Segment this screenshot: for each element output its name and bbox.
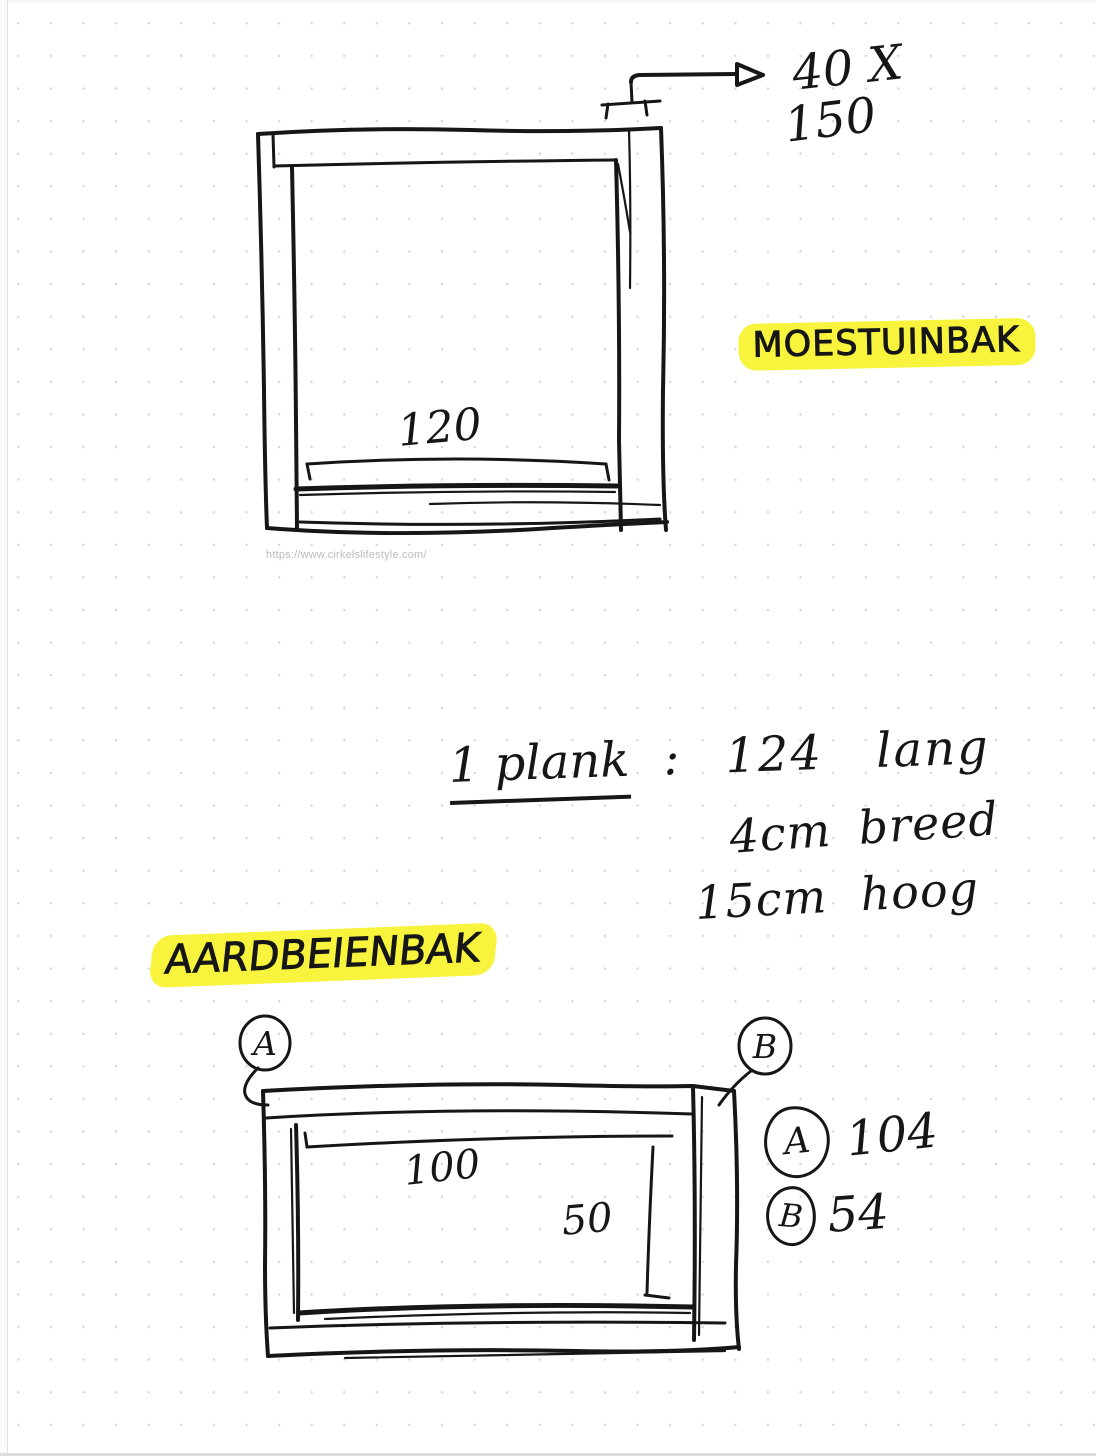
moestuinbak-width-label: 120 xyxy=(396,403,483,454)
moestuinbak-sketch xyxy=(240,60,780,550)
plank-note-width: 4cm breed xyxy=(728,795,1000,860)
callout-b: B xyxy=(719,1018,791,1105)
dimension-bracket-120 xyxy=(307,459,609,480)
moestuinbak-title-highlight: MOESTUINBAK xyxy=(738,318,1036,371)
strawberry-box-outline xyxy=(263,1084,739,1358)
plank-note-length: 124 lang xyxy=(724,719,990,784)
aardbeienbak-sketch: A B xyxy=(225,1005,805,1405)
callout-b-letter: B xyxy=(752,1027,777,1066)
planter-box-outline xyxy=(258,128,667,533)
plank-note-line1: 1 plank:124 lang xyxy=(448,723,991,790)
dimension-line-50 xyxy=(645,1147,669,1298)
plank-note-lead: 1 plank xyxy=(448,732,631,805)
page-edge-top xyxy=(0,0,1096,3)
legend-b-value: 54 xyxy=(826,1188,890,1240)
note-page-canvas[interactable]: 40 X 150 MOESTUINBAK 120 https://www.cir… xyxy=(0,0,1096,1456)
aardbeienbak-title-highlight: AARDBEIENBAK xyxy=(150,923,497,988)
plank-note-height: 15cm hoog xyxy=(694,865,980,926)
legend-b-key: B xyxy=(778,1199,804,1233)
aardbeienbak-width-label: 50 xyxy=(560,1198,614,1242)
legend-a-value: 104 xyxy=(844,1106,940,1163)
aardbeienbak-length-label: 100 xyxy=(402,1144,482,1192)
legend-a-key: A xyxy=(782,1123,812,1162)
plank-cut-size-line2: 150 xyxy=(782,91,879,150)
plank-cut-callout-arrow xyxy=(602,64,763,118)
page-edge-left xyxy=(0,0,8,1456)
moestuinbak-title: MOESTUINBAK xyxy=(738,318,1036,371)
source-url: https://www.cirkelslifestyle.com/ xyxy=(266,549,427,561)
callout-a-letter: A xyxy=(250,1024,277,1063)
aardbeienbak-title: AARDBEIENBAK xyxy=(148,923,498,988)
plank-note-colon: : xyxy=(662,730,680,787)
